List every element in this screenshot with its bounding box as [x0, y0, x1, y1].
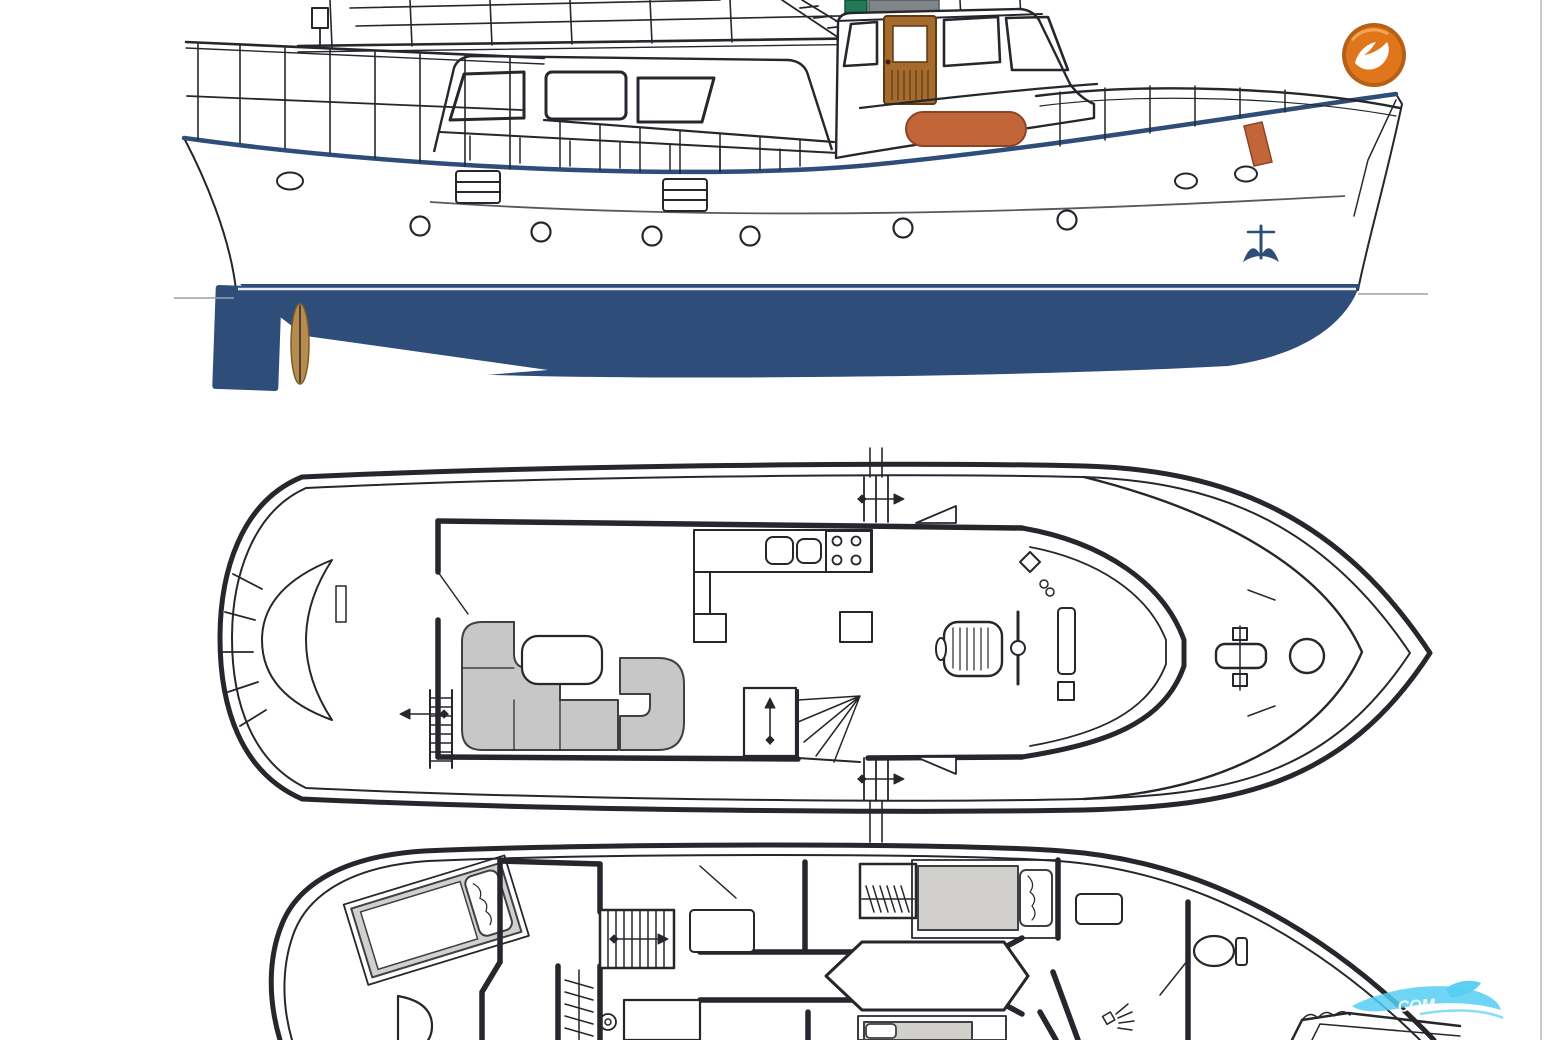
cabinet: [624, 1000, 700, 1040]
main-deck-plan: [220, 448, 1430, 842]
rudder: [212, 285, 282, 391]
life-raft: [906, 112, 1026, 146]
door-window: [893, 26, 927, 62]
galley-stove: [826, 531, 871, 572]
yacht-brochure-page: COM: [0, 0, 1560, 1040]
guest-pillow: [1020, 870, 1052, 926]
broker-logo-icon: [1342, 23, 1406, 87]
door-panel-lines: [892, 70, 928, 100]
mid-berth: [858, 1016, 1006, 1040]
vanity-desk: [1076, 894, 1122, 924]
hanging-locker-guest: [862, 886, 914, 912]
galley-sink: [766, 537, 793, 564]
instrument-panel: [1058, 608, 1075, 674]
guest-cabin: [860, 860, 1122, 938]
bathroom: [1103, 936, 1247, 1030]
saloon-table: [522, 636, 602, 684]
lower-stairs: [600, 910, 674, 968]
bureau: [690, 910, 754, 952]
wheelhouse-door: [884, 16, 936, 104]
side-profile-view: [174, 0, 1428, 391]
bow-berth: [1292, 1012, 1460, 1040]
hanging-locker-aft: [565, 970, 593, 1040]
toilet: [1194, 936, 1234, 966]
shower-head: [1103, 1004, 1134, 1030]
galley-cabinet-2: [840, 612, 872, 642]
yacht-drawings: COM: [0, 0, 1560, 1040]
nav-light-post: [312, 8, 328, 48]
lower-walls: [482, 860, 1188, 1040]
curved-seat: [398, 996, 432, 1040]
watermark-text: COM: [1397, 996, 1436, 1016]
galley-sink-2: [797, 539, 821, 563]
door-handle: [886, 60, 891, 65]
saloon-deckhouse: [434, 56, 838, 170]
galley-cabinet: [694, 614, 726, 642]
bathroom-door-swing: [1160, 960, 1188, 995]
lower-deck-plan: [271, 845, 1460, 1040]
deck-hatch: [1290, 639, 1324, 673]
guest-berth: [918, 866, 1018, 930]
corridor: [826, 942, 1028, 1010]
underwater-hull: [212, 284, 1360, 391]
cabin-door-swing: [700, 866, 736, 898]
